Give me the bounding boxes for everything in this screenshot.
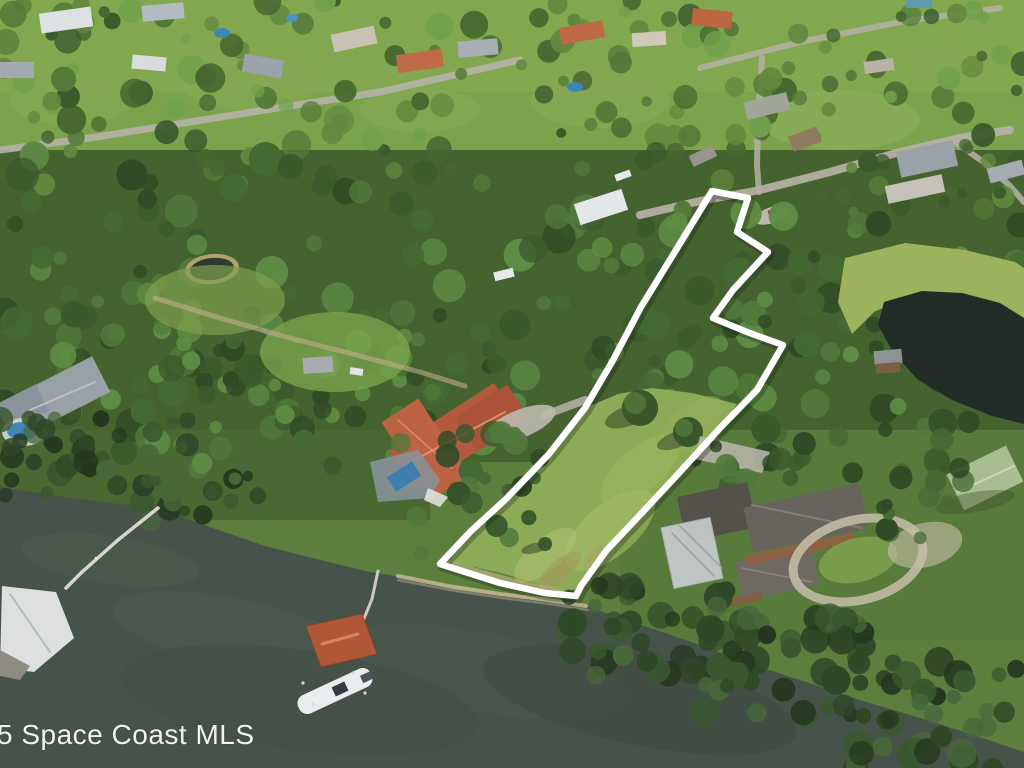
tree (665, 611, 680, 626)
tree (869, 176, 889, 196)
tree (167, 416, 179, 428)
tree (758, 626, 777, 645)
tree (703, 31, 730, 58)
tree (690, 698, 719, 727)
tree (973, 198, 994, 219)
oak-tree-highlight (675, 419, 693, 437)
shed-roof (302, 356, 333, 374)
tree (151, 476, 161, 486)
aerial-listing-photo: 5 Space Coast MLS (0, 0, 1024, 768)
tree (792, 91, 807, 106)
tree (604, 617, 622, 635)
tree (473, 174, 491, 192)
tree (44, 307, 62, 325)
tree (155, 120, 179, 144)
tree (92, 295, 104, 307)
tree (519, 235, 547, 263)
tree (769, 448, 792, 471)
tree (815, 603, 845, 633)
pool (214, 28, 230, 38)
tree (279, 98, 294, 113)
aerial-scene (0, 0, 1024, 768)
tree (833, 694, 855, 716)
tree (685, 276, 715, 306)
tree (93, 410, 110, 427)
tree (51, 67, 76, 92)
tree (592, 237, 613, 258)
tree (179, 412, 195, 428)
tree (706, 654, 732, 680)
tree (278, 154, 303, 179)
tree (876, 670, 893, 687)
tree (889, 466, 912, 489)
tree (192, 134, 207, 149)
tree (461, 492, 483, 514)
tree (847, 649, 866, 668)
tree (411, 332, 425, 346)
tree (707, 597, 727, 617)
tree (991, 45, 1011, 65)
house-roof (131, 55, 166, 72)
tree (705, 619, 725, 639)
tree (181, 34, 191, 44)
boat-lift-post (351, 671, 354, 674)
tree (159, 481, 180, 502)
tree (941, 495, 953, 507)
tree (499, 310, 530, 341)
tree (96, 460, 116, 480)
tree (963, 1, 983, 21)
tree (167, 100, 184, 117)
tree (209, 437, 232, 460)
tree (41, 131, 54, 144)
tree (679, 125, 701, 147)
tree (794, 330, 821, 357)
tree (556, 128, 566, 138)
tree (268, 379, 281, 392)
tree (880, 710, 899, 729)
tree (914, 532, 927, 545)
tree (665, 350, 693, 378)
tree (836, 189, 851, 204)
tree (721, 466, 738, 483)
tree (57, 105, 86, 134)
boat-lift-post (301, 681, 304, 684)
tree (925, 470, 947, 492)
tree (788, 24, 808, 44)
tree (196, 149, 215, 168)
tree (53, 251, 67, 265)
tree (420, 238, 447, 265)
tree (432, 308, 447, 323)
tree (952, 102, 975, 125)
tree (249, 487, 266, 504)
tree (241, 367, 262, 388)
tree (7, 216, 23, 232)
tree (300, 101, 321, 122)
tree (846, 162, 857, 173)
tree (885, 91, 897, 103)
tree (822, 76, 839, 93)
tree (842, 462, 863, 483)
tree (801, 389, 830, 418)
tree (608, 45, 630, 67)
tree (21, 192, 42, 213)
tree (971, 123, 995, 147)
tree (816, 190, 827, 201)
tree (558, 76, 569, 87)
tree (194, 461, 207, 474)
tree (516, 59, 527, 70)
pier-post (117, 539, 120, 542)
tree (619, 6, 631, 18)
house-roof (906, 0, 932, 8)
tree (28, 111, 41, 124)
tree (992, 667, 1007, 682)
tree (666, 143, 685, 162)
tree (42, 92, 61, 111)
tree (131, 399, 156, 424)
tree (665, 215, 678, 228)
tree (866, 211, 892, 237)
tree (196, 385, 215, 404)
tree (243, 471, 254, 482)
tree (924, 705, 943, 724)
tree (911, 694, 928, 711)
tree (196, 63, 225, 92)
tree (26, 454, 42, 470)
tree (460, 11, 488, 39)
tree (725, 124, 746, 145)
tree (158, 355, 185, 382)
tree (616, 573, 643, 600)
tree (34, 419, 55, 440)
tree (818, 254, 845, 281)
tree (979, 703, 995, 719)
tree (82, 461, 98, 477)
tree (444, 161, 459, 176)
tree (636, 651, 657, 672)
tree (133, 265, 147, 279)
tree (225, 333, 241, 349)
tree (283, 286, 296, 299)
tree (937, 67, 960, 90)
tree (930, 428, 953, 451)
tree (187, 235, 207, 255)
tree (648, 354, 661, 367)
tree (79, 435, 95, 451)
tree (588, 599, 602, 613)
tree (276, 405, 295, 424)
tree (677, 328, 698, 349)
tree (642, 96, 652, 106)
tree (829, 427, 849, 447)
tree (99, 6, 110, 17)
tree (487, 355, 506, 374)
tree (815, 369, 830, 384)
boat-lift-post (311, 702, 314, 705)
pool (567, 82, 583, 92)
tree (760, 67, 783, 90)
tree (852, 675, 868, 691)
tree (620, 243, 644, 267)
tree (791, 700, 816, 725)
tree (91, 116, 107, 132)
tree (661, 11, 677, 27)
pier-post (95, 557, 98, 560)
tree (720, 679, 734, 693)
tree (896, 11, 907, 22)
tree (141, 174, 158, 191)
tree (611, 117, 632, 138)
tree (736, 606, 761, 631)
tree (947, 690, 961, 704)
tree (455, 68, 467, 80)
tree (223, 371, 239, 387)
tree (587, 666, 606, 685)
tree (407, 506, 428, 527)
tree (958, 411, 980, 433)
tree (873, 737, 893, 757)
tree (878, 423, 892, 437)
tree (470, 322, 491, 343)
tree (876, 518, 899, 541)
tree (959, 139, 971, 151)
tree (138, 444, 159, 465)
tree (176, 336, 191, 351)
tree (199, 94, 216, 111)
tree (783, 470, 799, 486)
tree (596, 101, 618, 123)
tree (632, 633, 651, 652)
tree (559, 637, 586, 664)
tree (334, 80, 357, 103)
tree (445, 352, 469, 376)
tree (584, 118, 597, 131)
pool (286, 14, 298, 22)
tree (949, 458, 970, 479)
tree (575, 161, 591, 177)
oak-tree-highlight (624, 392, 646, 414)
tree (344, 406, 366, 428)
tree (412, 128, 426, 142)
tree (826, 29, 840, 43)
tree (890, 398, 907, 415)
tree (545, 204, 570, 229)
tree (204, 16, 219, 31)
tree (856, 708, 871, 723)
tree (558, 608, 587, 637)
tree (349, 180, 372, 203)
tree (302, 434, 319, 451)
tree (111, 439, 138, 466)
tree (751, 414, 781, 444)
boat-lift-post (363, 691, 366, 694)
tree (797, 289, 824, 316)
tree (849, 741, 874, 766)
tree (175, 441, 188, 454)
tree (220, 175, 248, 203)
tree (322, 282, 354, 314)
tree (313, 400, 332, 419)
tree (323, 456, 342, 475)
tree (521, 510, 536, 525)
tree (433, 269, 466, 302)
tree (819, 41, 832, 54)
tree (711, 336, 728, 353)
tree (758, 315, 772, 329)
tree (120, 79, 149, 108)
tree (953, 670, 975, 692)
tree (490, 421, 513, 444)
tree (892, 661, 921, 690)
tree (73, 306, 97, 330)
tree (938, 196, 951, 209)
house-roof (632, 31, 667, 47)
tree (646, 142, 667, 163)
tree (210, 421, 222, 433)
tree (229, 472, 242, 485)
tree (100, 324, 123, 347)
tree (981, 153, 997, 169)
tree (379, 17, 391, 29)
tree (822, 666, 851, 695)
tree (725, 77, 745, 97)
pier-post (139, 521, 142, 524)
tree (858, 152, 878, 172)
tree (193, 505, 212, 524)
tree (143, 422, 163, 442)
tree (112, 428, 128, 444)
tree (389, 191, 414, 216)
tree (251, 84, 264, 97)
tree (138, 190, 157, 209)
tree (456, 424, 475, 443)
tree (673, 85, 697, 109)
tree (207, 487, 218, 498)
tree (103, 213, 123, 233)
tree (159, 222, 175, 238)
tree (931, 726, 953, 748)
tree (438, 431, 457, 450)
tree (535, 85, 553, 103)
tree (843, 346, 859, 362)
tree (793, 432, 816, 455)
tree (426, 13, 453, 40)
tree (536, 296, 550, 310)
tree (747, 703, 766, 722)
tree (402, 244, 425, 267)
tree (957, 188, 967, 198)
tree (131, 377, 148, 394)
tree (390, 300, 415, 325)
tree (947, 738, 977, 768)
tree (780, 629, 802, 651)
tree (249, 142, 283, 176)
tree (412, 161, 437, 186)
tree (994, 702, 1015, 723)
tree (479, 472, 491, 484)
tree (769, 202, 798, 231)
tree (426, 136, 451, 161)
tree (50, 342, 76, 368)
tree (411, 93, 429, 111)
tree (782, 61, 796, 75)
tree (613, 645, 634, 666)
tree (881, 499, 893, 511)
tree (821, 342, 841, 362)
tree (947, 4, 967, 24)
tree (224, 494, 239, 509)
tree (994, 186, 1007, 199)
tree (64, 144, 78, 158)
tree (306, 235, 322, 251)
tree (976, 717, 996, 737)
tree (729, 662, 749, 682)
tree (590, 643, 607, 660)
tree (386, 162, 403, 179)
tree (822, 102, 836, 116)
tree (976, 51, 987, 62)
tree (312, 176, 332, 196)
tree (924, 9, 939, 24)
tree (430, 93, 454, 117)
tree (424, 384, 441, 401)
small-tree (538, 537, 552, 551)
house-roof (0, 62, 34, 78)
tree (510, 360, 540, 390)
tree (529, 8, 548, 27)
tree (5, 158, 39, 192)
tree (2, 438, 21, 457)
tree (182, 352, 200, 370)
tree (772, 678, 796, 702)
tree (846, 70, 857, 81)
tree (636, 218, 655, 237)
tree (757, 292, 773, 308)
tree (708, 366, 738, 396)
tree (604, 258, 620, 274)
tree (391, 433, 411, 453)
tree (0, 307, 33, 340)
pond-shed-wall (876, 362, 901, 374)
tree (361, 129, 383, 151)
tree (331, 114, 349, 132)
tree (4, 472, 19, 487)
tree (808, 251, 821, 264)
tree (249, 504, 264, 519)
tree (414, 546, 428, 560)
tree (554, 295, 571, 312)
tree (31, 246, 54, 269)
tree (1011, 85, 1022, 96)
tree (41, 487, 54, 500)
tree (411, 209, 434, 232)
